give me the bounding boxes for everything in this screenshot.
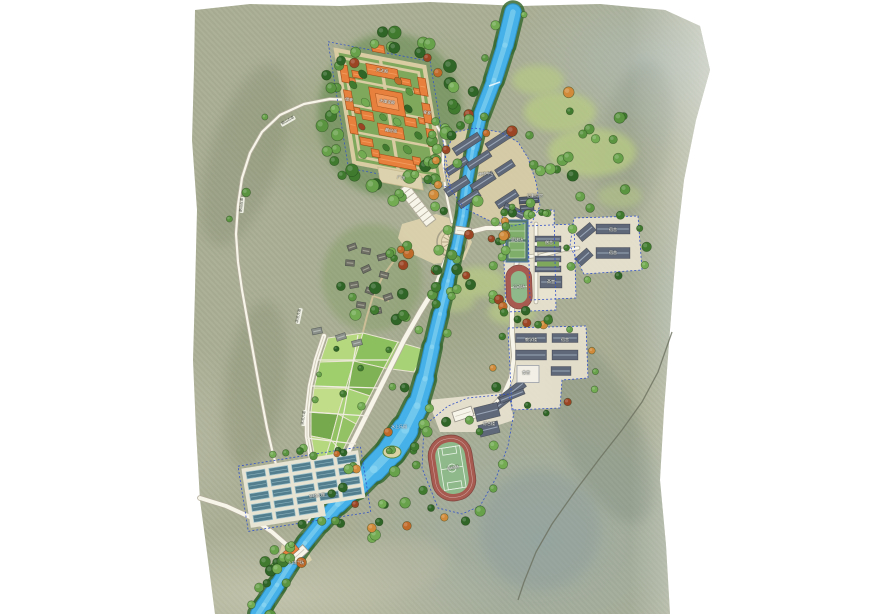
tree bbox=[483, 130, 490, 137]
village-house bbox=[349, 281, 359, 288]
tree bbox=[568, 224, 577, 233]
page: 天王殿大雄宝殿藏经阁僧寮客堂广场朝山古道朝山古道滨河大道滨河大道水上乐园种植大棚… bbox=[0, 0, 875, 614]
tree bbox=[489, 485, 497, 493]
tree bbox=[388, 195, 399, 206]
tree bbox=[613, 153, 623, 163]
tree bbox=[338, 171, 347, 180]
tree bbox=[472, 195, 483, 206]
tree-highlight bbox=[358, 366, 361, 369]
tree-highlight bbox=[501, 309, 504, 312]
tree-highlight bbox=[332, 518, 335, 521]
greenhouse-area bbox=[238, 447, 371, 532]
tree bbox=[336, 282, 345, 291]
tree bbox=[386, 347, 392, 353]
tree-highlight bbox=[527, 200, 531, 204]
tree bbox=[526, 198, 535, 207]
tree-highlight bbox=[433, 158, 436, 161]
tree bbox=[316, 120, 328, 132]
tree-highlight bbox=[447, 288, 451, 292]
tree-highlight bbox=[413, 462, 416, 465]
tree bbox=[543, 410, 549, 416]
tree bbox=[464, 114, 474, 124]
tree bbox=[591, 134, 600, 143]
dorm-courtyard bbox=[537, 262, 559, 267]
tree bbox=[422, 427, 433, 438]
tree-highlight bbox=[510, 205, 513, 208]
tree bbox=[475, 506, 486, 517]
tree-highlight bbox=[484, 131, 487, 134]
tree bbox=[609, 135, 617, 143]
tree-highlight bbox=[264, 580, 267, 583]
tree-highlight bbox=[493, 384, 497, 388]
tree-highlight bbox=[404, 242, 408, 246]
tree bbox=[432, 144, 442, 154]
tree-highlight bbox=[495, 296, 499, 300]
tree-highlight bbox=[411, 443, 415, 447]
tree-highlight bbox=[462, 518, 466, 522]
tree-highlight bbox=[527, 132, 530, 135]
tree-highlight bbox=[323, 72, 327, 76]
tree bbox=[350, 309, 361, 320]
tree bbox=[448, 81, 459, 92]
tree-highlight bbox=[347, 166, 352, 171]
tree bbox=[443, 329, 451, 337]
roof-ridge bbox=[347, 263, 354, 264]
tree bbox=[350, 47, 360, 57]
tree bbox=[462, 272, 470, 280]
tree bbox=[334, 451, 340, 457]
tree bbox=[492, 382, 502, 392]
tree-highlight bbox=[529, 212, 532, 215]
tree bbox=[389, 383, 396, 390]
tree-highlight bbox=[353, 466, 357, 470]
tree bbox=[357, 402, 365, 410]
tree bbox=[296, 557, 306, 567]
tree bbox=[344, 464, 354, 474]
tree bbox=[282, 579, 291, 588]
tree bbox=[326, 83, 337, 94]
tree bbox=[576, 192, 585, 201]
tree-highlight bbox=[617, 212, 621, 216]
tree bbox=[588, 347, 595, 354]
tree-highlight bbox=[481, 114, 484, 117]
tree bbox=[428, 131, 436, 139]
tree bbox=[262, 114, 268, 120]
tree bbox=[564, 398, 572, 406]
tree bbox=[410, 442, 419, 451]
tree-highlight bbox=[319, 518, 323, 522]
tree-highlight bbox=[419, 39, 424, 44]
tree bbox=[567, 262, 575, 270]
village-house bbox=[361, 247, 371, 254]
tree bbox=[428, 504, 435, 511]
roof-ridge bbox=[356, 110, 359, 111]
tree bbox=[398, 260, 408, 270]
tree-highlight bbox=[299, 521, 303, 525]
tree-highlight bbox=[500, 303, 504, 307]
village-house bbox=[345, 260, 354, 267]
tree bbox=[447, 250, 457, 260]
tree-highlight bbox=[490, 263, 494, 267]
tree-highlight bbox=[423, 428, 427, 432]
tree-highlight bbox=[502, 210, 505, 213]
tree-highlight bbox=[445, 61, 451, 67]
tree bbox=[331, 128, 343, 140]
tree bbox=[384, 428, 393, 437]
tree-highlight bbox=[371, 307, 375, 311]
tree bbox=[489, 364, 496, 371]
tree bbox=[366, 179, 379, 192]
tree bbox=[316, 372, 321, 377]
tree bbox=[566, 326, 572, 332]
tree bbox=[317, 517, 326, 526]
tree-highlight bbox=[565, 399, 568, 402]
tree-highlight bbox=[580, 131, 584, 135]
tree bbox=[501, 209, 508, 216]
tree-highlight bbox=[333, 130, 338, 135]
tree-highlight bbox=[434, 267, 438, 271]
tree bbox=[491, 21, 500, 30]
tree bbox=[352, 501, 359, 508]
tree-highlight bbox=[400, 312, 404, 316]
tree bbox=[400, 497, 411, 508]
site-plan-svg bbox=[0, 0, 875, 614]
tree-highlight bbox=[376, 519, 379, 522]
tree-highlight bbox=[389, 197, 394, 202]
tree-highlight bbox=[317, 373, 319, 375]
tree-highlight bbox=[371, 284, 376, 289]
tree-highlight bbox=[391, 467, 396, 472]
tree-highlight bbox=[435, 69, 439, 73]
tree bbox=[388, 26, 401, 39]
tree-highlight bbox=[586, 126, 590, 130]
tree-highlight bbox=[311, 453, 314, 456]
tree-highlight bbox=[547, 165, 552, 170]
tree-highlight bbox=[491, 486, 494, 489]
tree-highlight bbox=[327, 84, 331, 88]
tree-highlight bbox=[392, 316, 397, 321]
tree-highlight bbox=[401, 499, 406, 504]
tree-highlight bbox=[477, 429, 480, 432]
tree bbox=[448, 292, 456, 300]
tree-highlight bbox=[350, 294, 353, 297]
tree bbox=[386, 448, 392, 454]
tree bbox=[397, 246, 404, 253]
tree bbox=[272, 564, 282, 574]
tree bbox=[456, 121, 464, 129]
tree-highlight bbox=[525, 403, 528, 406]
tree-highlight bbox=[398, 247, 401, 250]
tree bbox=[443, 225, 452, 234]
tree-highlight bbox=[565, 153, 569, 157]
tree-highlight bbox=[454, 286, 458, 290]
roof-ridge bbox=[415, 91, 418, 92]
tree-highlight bbox=[500, 232, 504, 236]
tree-highlight bbox=[585, 277, 588, 280]
tree bbox=[529, 160, 538, 169]
field-shed bbox=[311, 327, 322, 335]
tree-highlight bbox=[390, 384, 393, 387]
tree bbox=[424, 175, 433, 184]
tree-highlight bbox=[432, 284, 436, 288]
tree bbox=[429, 190, 439, 200]
tree-highlight bbox=[379, 501, 383, 505]
tree bbox=[481, 54, 488, 61]
tree bbox=[440, 207, 448, 215]
dining-hall bbox=[540, 276, 562, 288]
tree bbox=[526, 131, 534, 139]
tree bbox=[312, 397, 319, 404]
tree-highlight bbox=[353, 502, 356, 505]
tree bbox=[397, 288, 408, 299]
tree-highlight bbox=[482, 55, 485, 58]
tree-highlight bbox=[420, 487, 424, 491]
tree bbox=[502, 222, 510, 230]
tree-highlight bbox=[286, 555, 290, 559]
tree bbox=[452, 285, 461, 294]
tree-highlight bbox=[426, 405, 430, 409]
tree bbox=[534, 321, 541, 328]
tree bbox=[254, 583, 263, 592]
tree-highlight bbox=[467, 281, 471, 285]
tree bbox=[322, 146, 332, 156]
tree bbox=[400, 383, 409, 392]
tree-highlight bbox=[256, 584, 260, 588]
tree bbox=[528, 211, 535, 218]
tree bbox=[378, 500, 387, 509]
tree bbox=[423, 54, 431, 62]
tree bbox=[509, 204, 515, 210]
tree-highlight bbox=[569, 171, 574, 176]
tree-highlight bbox=[489, 236, 492, 239]
tree-highlight bbox=[243, 189, 247, 193]
tree bbox=[544, 315, 553, 324]
dorm-slab bbox=[535, 256, 561, 262]
tree-highlight bbox=[492, 22, 496, 26]
tree-highlight bbox=[568, 263, 571, 266]
tree bbox=[334, 346, 340, 352]
teaching-building bbox=[552, 334, 578, 343]
tree bbox=[491, 218, 499, 226]
tree-highlight bbox=[390, 44, 395, 49]
tree bbox=[615, 272, 622, 279]
tree bbox=[398, 310, 409, 321]
tree bbox=[443, 59, 456, 72]
tree-highlight bbox=[261, 558, 266, 563]
tree-highlight bbox=[530, 162, 534, 166]
tree bbox=[448, 99, 458, 109]
tree bbox=[270, 545, 279, 554]
tree bbox=[468, 86, 478, 96]
tree bbox=[431, 282, 441, 292]
tree-highlight bbox=[416, 327, 419, 330]
tree bbox=[263, 579, 271, 587]
tree bbox=[226, 216, 232, 222]
tree bbox=[461, 517, 470, 526]
tree-highlight bbox=[443, 147, 446, 150]
tree-highlight bbox=[466, 231, 470, 235]
tree-highlight bbox=[283, 450, 286, 453]
tree-highlight bbox=[359, 403, 362, 406]
tree bbox=[386, 249, 394, 257]
tree bbox=[298, 520, 307, 529]
tree-highlight bbox=[637, 226, 640, 229]
tree bbox=[543, 210, 549, 216]
tree-highlight bbox=[490, 442, 494, 446]
white-building bbox=[517, 366, 539, 383]
tree-highlight bbox=[499, 461, 503, 465]
tree-highlight bbox=[610, 136, 614, 140]
tree bbox=[524, 402, 531, 409]
tree-highlight bbox=[387, 251, 390, 254]
tree bbox=[411, 170, 419, 178]
tree bbox=[642, 242, 652, 252]
tree-highlight bbox=[449, 293, 452, 296]
tree-highlight bbox=[333, 146, 337, 150]
tree bbox=[433, 265, 442, 274]
tree bbox=[403, 521, 412, 530]
tree-highlight bbox=[465, 115, 469, 119]
tree-highlight bbox=[329, 491, 332, 494]
lawn-patch bbox=[548, 128, 636, 176]
tree-highlight bbox=[616, 273, 619, 276]
tree-highlight bbox=[435, 246, 439, 250]
tree bbox=[545, 164, 556, 175]
tree bbox=[563, 87, 574, 98]
lawn-patch bbox=[512, 65, 564, 95]
tree bbox=[338, 483, 347, 492]
tree-highlight bbox=[425, 40, 430, 45]
tree-highlight bbox=[323, 147, 327, 151]
tree bbox=[500, 308, 508, 316]
tree-highlight bbox=[270, 452, 273, 455]
tree-highlight bbox=[502, 218, 505, 221]
tree-highlight bbox=[448, 251, 452, 255]
tree-highlight bbox=[335, 451, 338, 454]
tree bbox=[499, 231, 509, 241]
tree-highlight bbox=[569, 226, 573, 230]
tree-highlight bbox=[289, 542, 292, 545]
tree bbox=[336, 56, 345, 65]
tree bbox=[442, 146, 450, 154]
tree-highlight bbox=[425, 176, 429, 180]
tree bbox=[591, 386, 598, 393]
dorm-east-building bbox=[596, 248, 630, 259]
tree bbox=[616, 211, 624, 219]
tree-highlight bbox=[567, 327, 570, 330]
tree-highlight bbox=[502, 247, 506, 251]
tree-highlight bbox=[351, 310, 356, 315]
tree bbox=[447, 131, 456, 140]
tree bbox=[370, 306, 379, 315]
tree-highlight bbox=[352, 49, 356, 53]
tree-highlight bbox=[522, 12, 525, 15]
tree-highlight bbox=[404, 523, 408, 527]
tree-highlight bbox=[500, 334, 503, 337]
tree-highlight bbox=[249, 602, 252, 605]
tree-highlight bbox=[589, 348, 592, 351]
tree-highlight bbox=[341, 450, 344, 453]
dorm-slab bbox=[535, 236, 561, 242]
tree-highlight bbox=[428, 505, 431, 508]
tree bbox=[331, 517, 339, 525]
tree bbox=[641, 261, 649, 269]
tree bbox=[465, 416, 474, 425]
tree bbox=[465, 279, 475, 289]
tree bbox=[310, 452, 318, 460]
tree-highlight bbox=[535, 322, 538, 325]
tree bbox=[288, 541, 294, 547]
tree-highlight bbox=[334, 347, 336, 349]
tree bbox=[370, 39, 379, 48]
tree-highlight bbox=[524, 320, 528, 324]
tree-highlight bbox=[442, 515, 445, 518]
tree bbox=[489, 261, 498, 270]
small-track bbox=[505, 265, 533, 310]
tree bbox=[419, 486, 428, 495]
tree bbox=[415, 326, 423, 334]
tree bbox=[432, 157, 440, 165]
tree bbox=[434, 181, 442, 189]
tree bbox=[282, 450, 289, 457]
tree-highlight bbox=[313, 397, 316, 400]
tree-highlight bbox=[435, 182, 438, 185]
tree bbox=[423, 38, 435, 50]
tree-highlight bbox=[442, 128, 447, 133]
tree-highlight bbox=[400, 261, 404, 265]
roof-ridge bbox=[420, 121, 423, 122]
tree-highlight bbox=[387, 348, 390, 351]
tree-highlight bbox=[592, 387, 595, 390]
tree-highlight bbox=[577, 193, 581, 197]
tree-highlight bbox=[449, 83, 454, 88]
tree-highlight bbox=[448, 132, 452, 136]
teaching-building bbox=[552, 350, 578, 360]
tree bbox=[322, 70, 332, 80]
tree bbox=[586, 204, 595, 213]
tree bbox=[430, 202, 439, 211]
tree-highlight bbox=[297, 448, 300, 451]
tree-highlight bbox=[490, 292, 494, 296]
tree-highlight bbox=[441, 208, 444, 211]
tree-highlight bbox=[433, 145, 437, 149]
tree-highlight bbox=[492, 219, 496, 223]
tree bbox=[564, 245, 570, 251]
tree bbox=[498, 459, 508, 469]
tree-highlight bbox=[424, 55, 427, 58]
tree bbox=[501, 246, 510, 255]
tree bbox=[328, 490, 336, 498]
tree bbox=[499, 333, 506, 340]
tree-highlight bbox=[369, 525, 373, 529]
tree-highlight bbox=[390, 28, 395, 33]
tree bbox=[636, 225, 642, 231]
tree bbox=[296, 447, 303, 454]
tree bbox=[464, 230, 474, 240]
tree bbox=[331, 144, 340, 153]
tree-highlight bbox=[567, 109, 570, 112]
tree-highlight bbox=[564, 246, 567, 249]
tree-highlight bbox=[490, 365, 493, 368]
tree bbox=[330, 105, 339, 114]
tree-highlight bbox=[433, 119, 436, 122]
tree bbox=[389, 466, 400, 477]
tree bbox=[453, 159, 462, 168]
stadium bbox=[425, 432, 479, 504]
tree-highlight bbox=[331, 158, 335, 162]
tree-highlight bbox=[474, 197, 479, 202]
tree bbox=[358, 365, 364, 371]
